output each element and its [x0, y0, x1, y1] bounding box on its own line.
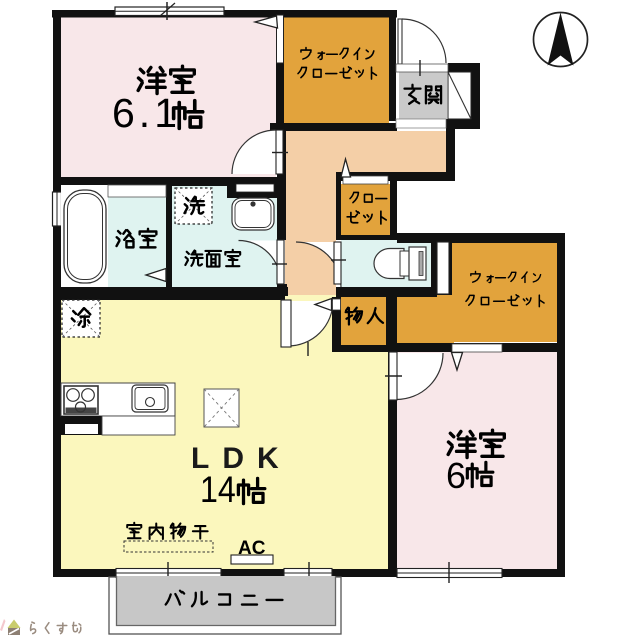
svg-text:6: 6 — [446, 455, 466, 496]
svg-text:14: 14 — [200, 470, 236, 511]
svg-text:6.1: 6.1 — [112, 90, 181, 136]
